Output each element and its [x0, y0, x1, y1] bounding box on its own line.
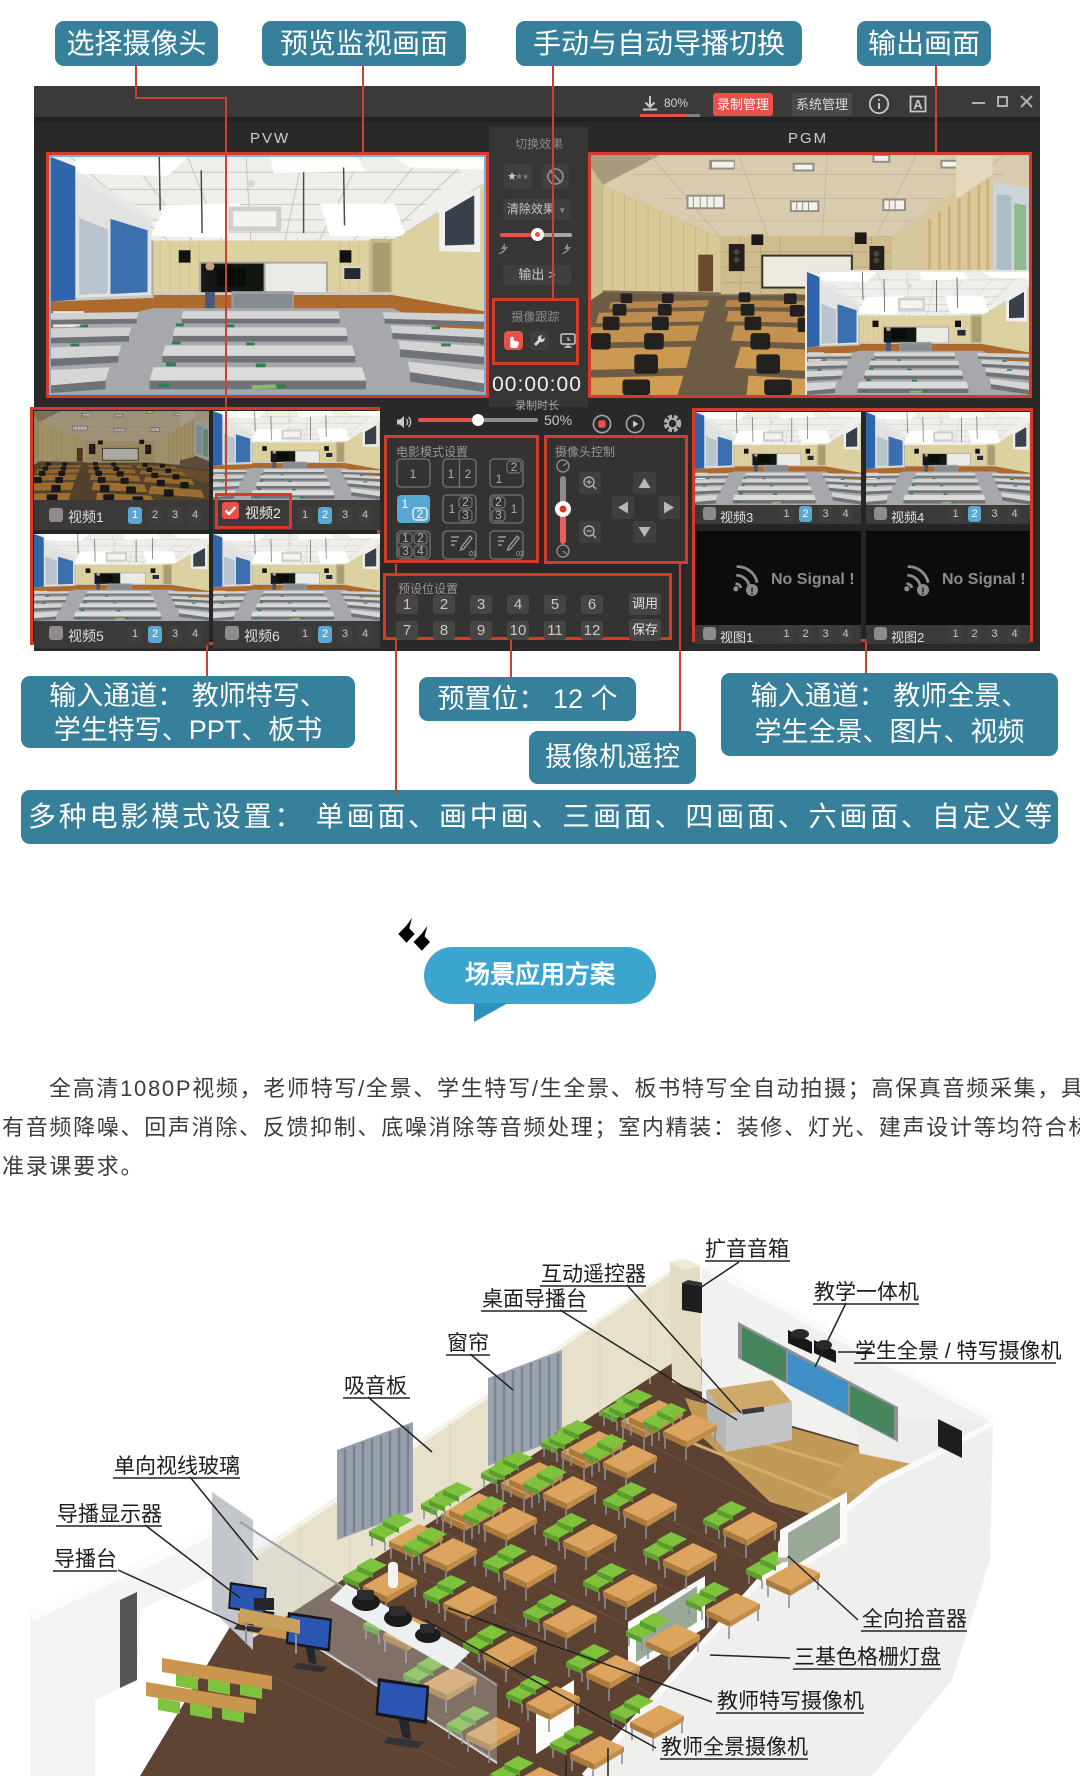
svg-text:1: 1 [448, 467, 455, 481]
svg-text:全向拾音器: 全向拾音器 [862, 1608, 967, 1631]
svg-text:01: 01 [469, 551, 477, 558]
svg-text:2: 2 [462, 495, 469, 509]
svg-text:1: 1 [511, 502, 518, 516]
svg-text:1: 1 [449, 502, 456, 516]
svg-text:教师全景摄像机: 教师全景摄像机 [661, 1736, 808, 1759]
svg-text:A: A [913, 97, 923, 112]
svg-text:2: 2 [495, 495, 502, 509]
svg-text:互动遥控器: 互动遥控器 [541, 1263, 646, 1286]
svg-text:扩音音箱: 扩音音箱 [705, 1238, 789, 1261]
svg-text:!: ! [921, 587, 924, 598]
svg-text:3: 3 [462, 508, 469, 522]
svg-text:3: 3 [402, 544, 409, 558]
svg-text:2: 2 [465, 467, 472, 481]
svg-text:1: 1 [496, 472, 503, 486]
svg-text:教学一体机: 教学一体机 [814, 1281, 919, 1304]
svg-text:导播显示器: 导播显示器 [57, 1503, 162, 1526]
svg-text:导播台: 导播台 [54, 1548, 117, 1571]
svg-text:02: 02 [516, 551, 524, 558]
svg-text:吸音板: 吸音板 [344, 1375, 407, 1398]
svg-text:2: 2 [417, 531, 424, 545]
svg-text:1: 1 [402, 497, 409, 511]
svg-text:4: 4 [417, 544, 424, 558]
svg-text:教师特写摄像机: 教师特写摄像机 [717, 1690, 864, 1713]
svg-text:学生全景 / 特写摄像机: 学生全景 / 特写摄像机 [855, 1340, 1062, 1363]
svg-text:单向视线玻璃: 单向视线玻璃 [114, 1455, 240, 1478]
svg-text:1: 1 [410, 467, 417, 481]
svg-text:1: 1 [402, 531, 409, 545]
svg-text:!: ! [750, 587, 753, 598]
svg-text:3: 3 [495, 508, 502, 522]
svg-text:窗帘: 窗帘 [447, 1332, 489, 1355]
svg-text:2: 2 [417, 507, 424, 521]
svg-text:三基色格栅灯盘: 三基色格栅灯盘 [794, 1646, 941, 1669]
svg-text:桌面导播台: 桌面导播台 [482, 1288, 587, 1311]
svg-text:2: 2 [511, 460, 518, 474]
